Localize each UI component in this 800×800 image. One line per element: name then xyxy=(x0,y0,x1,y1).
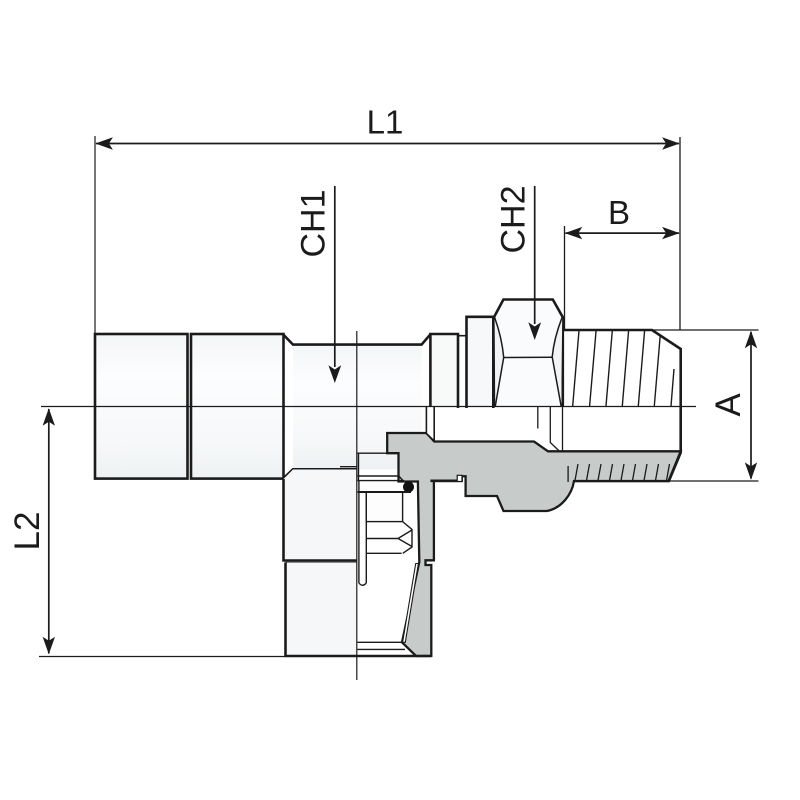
svg-text:L2: L2 xyxy=(8,512,47,551)
svg-text:CH2: CH2 xyxy=(495,185,533,253)
svg-text:L1: L1 xyxy=(367,104,404,141)
svg-text:B: B xyxy=(608,194,630,231)
svg-text:A: A xyxy=(709,393,748,417)
svg-text:CH1: CH1 xyxy=(295,189,333,257)
